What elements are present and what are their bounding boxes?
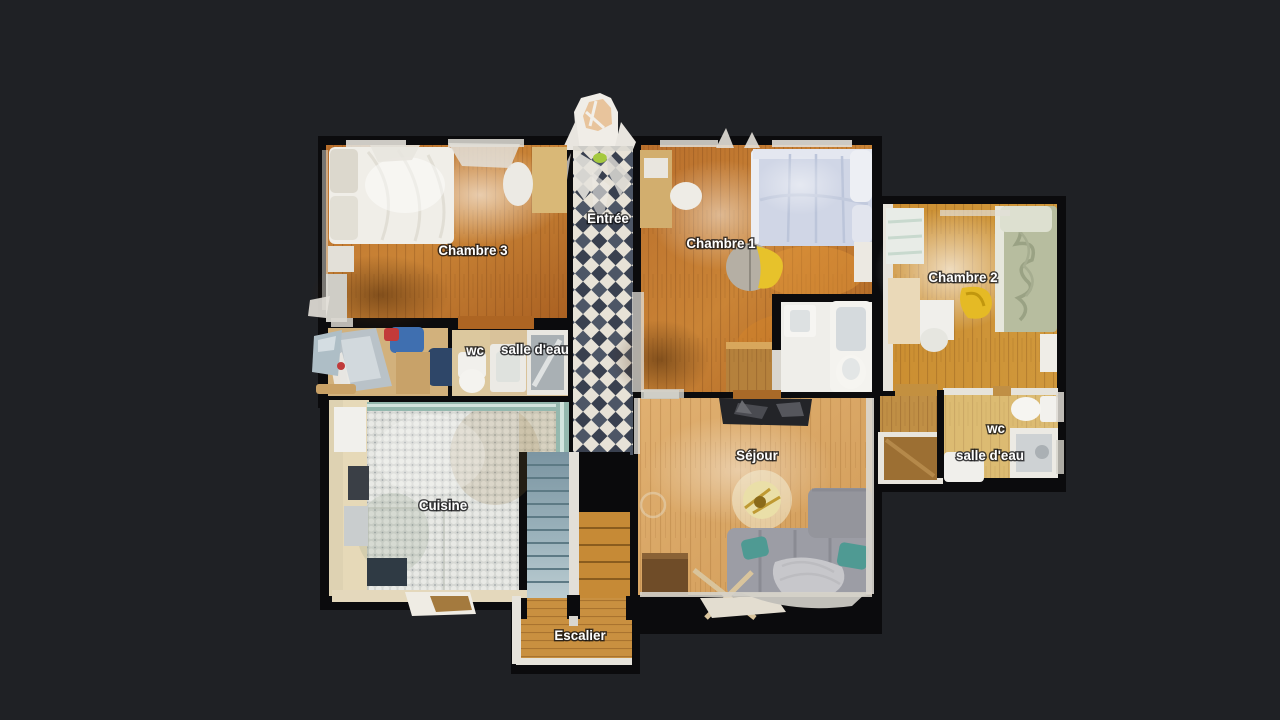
svg-text:Chambre 2: Chambre 2 — [928, 270, 997, 285]
svg-text:salle d'eau: salle d'eau — [501, 342, 569, 357]
svg-text:Chambre 3: Chambre 3 — [438, 243, 507, 258]
svg-text:salle d'eau: salle d'eau — [956, 448, 1024, 463]
svg-text:Cuisine: Cuisine — [419, 498, 467, 513]
svg-text:Chambre 1: Chambre 1 — [686, 236, 756, 251]
svg-text:Séjour: Séjour — [736, 448, 778, 463]
svg-text:wc: wc — [986, 421, 1005, 436]
svg-text:Entrée: Entrée — [587, 211, 629, 226]
svg-text:Escalier: Escalier — [554, 628, 606, 643]
svg-text:wc: wc — [465, 343, 484, 358]
